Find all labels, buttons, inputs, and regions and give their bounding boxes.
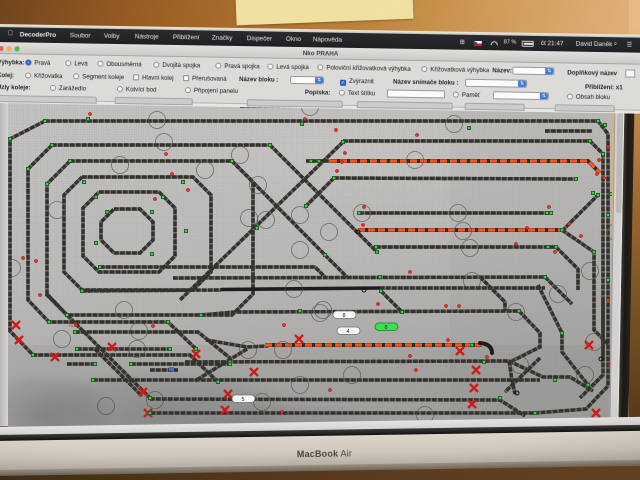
svg-text:4: 4	[346, 329, 349, 335]
svg-text:TX2: TX2	[68, 323, 76, 328]
svg-text:8: 8	[384, 325, 387, 331]
svg-text:5: 5	[241, 397, 244, 403]
svg-text:8: 8	[342, 313, 345, 319]
